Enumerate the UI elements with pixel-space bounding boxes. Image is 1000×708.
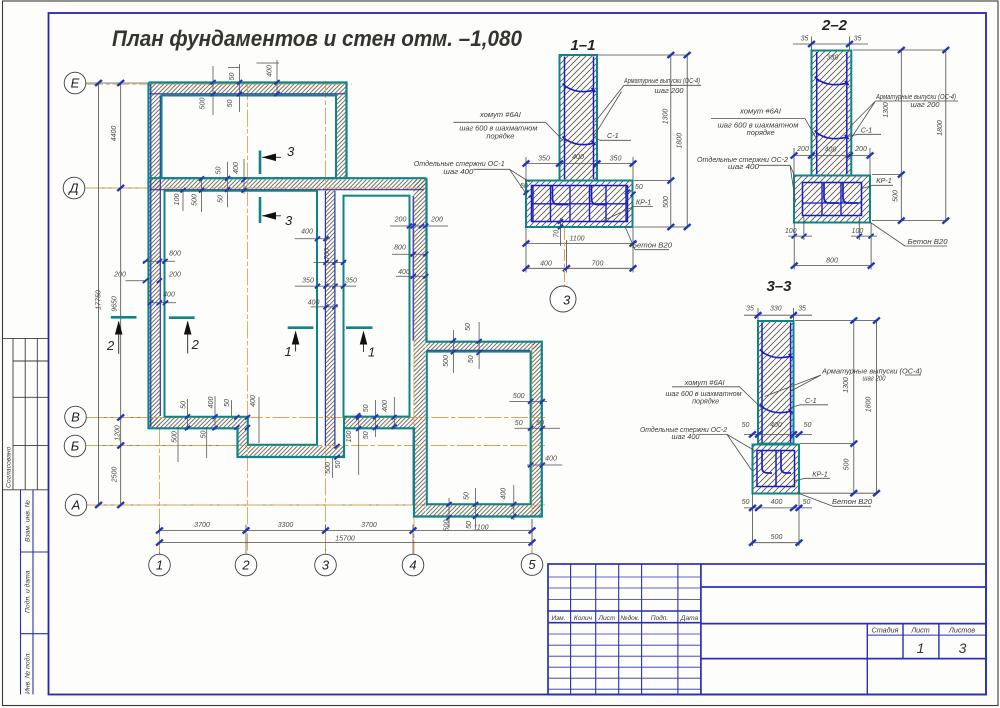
svg-text:350: 350 (302, 277, 314, 284)
svg-text:50: 50 (515, 420, 523, 427)
svg-text:50: 50 (218, 195, 225, 203)
svg-text:50: 50 (466, 521, 473, 529)
svg-text:50: 50 (742, 499, 750, 506)
svg-text:С-1: С-1 (607, 131, 619, 140)
svg-text:50: 50 (335, 461, 342, 469)
svg-text:15700: 15700 (335, 535, 355, 542)
svg-text:порядке: порядке (747, 128, 775, 137)
svg-text:1800: 1800 (937, 120, 944, 136)
svg-text:35: 35 (854, 36, 862, 43)
svg-text:330: 330 (770, 305, 782, 312)
svg-text:3: 3 (322, 558, 330, 573)
svg-text:Колич: Колич (574, 615, 593, 622)
svg-text:800: 800 (394, 245, 406, 252)
svg-text:500: 500 (443, 355, 450, 367)
svg-text:1–1: 1–1 (570, 37, 595, 54)
svg-text:Стадия: Стадия (872, 626, 899, 635)
svg-text:Бетон В20: Бетон В20 (908, 237, 948, 246)
svg-text:порядке: порядке (692, 397, 719, 406)
svg-text:шаг 400: шаг 400 (672, 432, 700, 441)
svg-text:50: 50 (803, 499, 811, 506)
svg-text:800: 800 (169, 251, 181, 258)
svg-text:Дата: Дата (680, 615, 699, 622)
svg-text:Лист: Лист (598, 615, 616, 622)
svg-text:шаг 200: шаг 200 (655, 86, 684, 95)
svg-text:400: 400 (572, 154, 584, 161)
svg-text:3300: 3300 (278, 522, 294, 529)
svg-text:35: 35 (798, 305, 806, 312)
svg-text:500: 500 (172, 431, 179, 443)
svg-text:500: 500 (844, 459, 851, 471)
svg-text:200: 200 (854, 146, 867, 153)
svg-text:200: 200 (430, 217, 443, 224)
svg-text:50: 50 (464, 492, 471, 500)
svg-text:1800: 1800 (677, 133, 684, 149)
svg-text:100: 100 (852, 228, 864, 235)
svg-text:400: 400 (770, 422, 782, 429)
svg-text:50: 50 (363, 404, 370, 412)
svg-text:50: 50 (804, 422, 812, 429)
svg-text:3–3: 3–3 (766, 278, 792, 295)
svg-text:400: 400 (540, 261, 552, 268)
svg-text:Взам. инв. №: Взам. инв. № (25, 500, 32, 542)
svg-text:400: 400 (771, 499, 783, 506)
svg-text:500: 500 (892, 190, 899, 202)
svg-text:100: 100 (346, 431, 353, 443)
svg-text:500: 500 (444, 520, 451, 532)
svg-text:50: 50 (216, 167, 223, 175)
svg-text:1300: 1300 (662, 109, 669, 125)
svg-text:Согласовано: Согласовано (6, 446, 13, 488)
svg-text:С-1: С-1 (805, 396, 817, 405)
svg-text:700: 700 (592, 261, 604, 268)
svg-text:1200: 1200 (115, 425, 122, 441)
svg-text:50: 50 (229, 73, 236, 81)
svg-text:1: 1 (917, 640, 925, 656)
svg-text:хомут #6АI: хомут #6АI (479, 110, 521, 119)
svg-text:330: 330 (827, 55, 839, 62)
svg-text:5: 5 (528, 557, 536, 572)
svg-text:400: 400 (301, 229, 313, 236)
svg-text:2: 2 (191, 337, 200, 352)
svg-text:400: 400 (398, 269, 410, 276)
svg-text:хомут #6АI: хомут #6АI (684, 378, 725, 387)
svg-text:400: 400 (233, 162, 240, 174)
svg-text:50: 50 (742, 422, 750, 429)
svg-text:100: 100 (785, 228, 797, 235)
svg-text:700: 700 (324, 248, 331, 260)
svg-text:400: 400 (382, 400, 389, 412)
svg-text:3: 3 (563, 293, 571, 308)
svg-text:1: 1 (285, 344, 292, 359)
svg-text:КР-1: КР-1 (812, 469, 827, 478)
svg-text:50: 50 (363, 431, 370, 439)
svg-text:2: 2 (106, 338, 115, 353)
svg-text:3: 3 (287, 144, 295, 159)
svg-text:шаг 400: шаг 400 (728, 162, 759, 171)
svg-text:Подп. и дата: Подп. и дата (24, 570, 32, 613)
svg-text:1100: 1100 (569, 236, 584, 243)
svg-text:3700: 3700 (361, 522, 377, 529)
svg-text:2: 2 (241, 558, 250, 573)
svg-text:50: 50 (468, 355, 475, 363)
svg-text:порядке: порядке (486, 132, 514, 141)
svg-text:КР-1: КР-1 (636, 198, 651, 207)
svg-text:400: 400 (267, 65, 274, 77)
svg-text:800: 800 (826, 257, 838, 264)
svg-text:3700: 3700 (194, 522, 210, 529)
svg-text:50: 50 (201, 431, 208, 439)
svg-text:3: 3 (285, 213, 293, 228)
svg-text:шаг 200: шаг 200 (863, 374, 886, 383)
svg-text:500: 500 (663, 196, 670, 208)
svg-text:35: 35 (801, 36, 809, 43)
svg-text:1800: 1800 (865, 397, 872, 413)
svg-text:400: 400 (501, 488, 508, 500)
svg-text:Изм.: Изм. (551, 615, 565, 622)
svg-text:400: 400 (250, 395, 257, 407)
svg-text:500: 500 (192, 194, 199, 206)
svg-text:1300: 1300 (843, 377, 850, 393)
svg-text:4: 4 (409, 558, 416, 573)
svg-text:50: 50 (536, 420, 544, 427)
svg-text:500: 500 (325, 462, 332, 474)
svg-text:План фундаментов и стен отм. –: План фундаментов и стен отм. –1,080 (112, 26, 522, 51)
svg-text:шаг 400: шаг 400 (443, 167, 473, 176)
svg-text:35: 35 (746, 305, 754, 312)
svg-text:хомут #6АI: хомут #6АI (739, 107, 781, 116)
svg-text:А: А (71, 498, 81, 513)
svg-text:Бетон В20: Бетон В20 (632, 241, 672, 250)
svg-text:КР-1: КР-1 (876, 176, 891, 185)
svg-text:Листов: Листов (948, 626, 975, 635)
svg-text:Арматурные выпуски (ОС-4): Арматурные выпуски (ОС-4) (623, 76, 700, 85)
svg-text:400: 400 (163, 292, 175, 299)
svg-text:500: 500 (200, 98, 207, 110)
svg-text:1300: 1300 (883, 102, 890, 118)
svg-text:350: 350 (610, 155, 622, 162)
svg-text:9650: 9650 (112, 296, 119, 312)
svg-text:50: 50 (181, 401, 188, 409)
svg-text:50: 50 (227, 100, 234, 108)
svg-text:2500: 2500 (112, 467, 119, 484)
svg-text:4400: 4400 (111, 126, 118, 142)
svg-text:200: 200 (113, 271, 126, 278)
svg-text:400: 400 (208, 397, 215, 409)
svg-text:70: 70 (554, 230, 561, 238)
svg-text:200: 200 (168, 271, 181, 278)
svg-text:Лист: Лист (910, 626, 930, 635)
svg-text:17750: 17750 (96, 290, 103, 310)
svg-text:200: 200 (796, 146, 809, 153)
svg-text:400: 400 (825, 146, 837, 153)
svg-text:50: 50 (224, 399, 231, 407)
svg-text:Д: Д (67, 181, 78, 196)
svg-text:350: 350 (345, 277, 357, 284)
svg-text:100: 100 (174, 194, 181, 206)
svg-text:Подп.: Подп. (651, 614, 669, 622)
svg-text:500: 500 (513, 393, 525, 400)
svg-text:400: 400 (545, 455, 557, 462)
svg-text:1: 1 (368, 345, 375, 360)
svg-text:50: 50 (465, 323, 472, 331)
svg-text:400: 400 (308, 300, 320, 307)
svg-text:Е: Е (71, 76, 80, 91)
svg-text:С-1: С-1 (861, 125, 873, 134)
svg-text:500: 500 (771, 534, 783, 541)
svg-text:350: 350 (538, 155, 550, 162)
svg-text:2–2: 2–2 (821, 17, 848, 34)
svg-text:1: 1 (156, 558, 163, 573)
svg-text:Инв. № подл.: Инв. № подл. (24, 652, 32, 694)
svg-text:Бетон В20: Бетон В20 (832, 497, 872, 506)
svg-text:Б: Б (71, 439, 80, 454)
svg-text:50: 50 (635, 184, 643, 191)
svg-text:В: В (71, 410, 80, 425)
svg-text:200: 200 (394, 217, 407, 224)
svg-text:3: 3 (959, 640, 967, 656)
svg-text:№док.: №док. (620, 614, 640, 622)
